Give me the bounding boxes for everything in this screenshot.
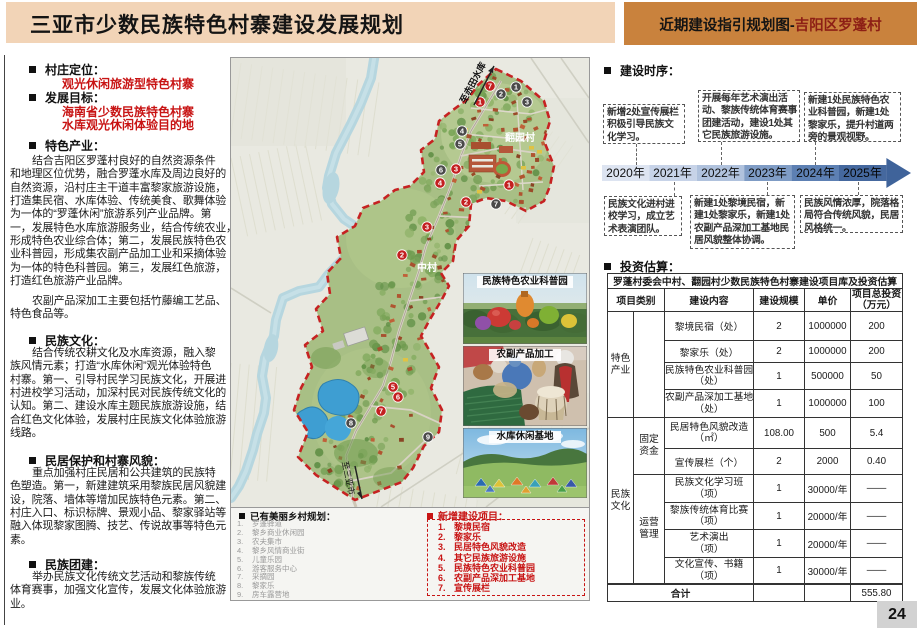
svg-text:3: 3 <box>525 98 529 107</box>
svg-text:3: 3 <box>425 223 429 232</box>
svg-text:2: 2 <box>400 251 404 260</box>
svg-text:3: 3 <box>454 165 458 174</box>
svg-text:2: 2 <box>499 90 503 99</box>
svg-text:7: 7 <box>494 200 498 209</box>
svg-text:5: 5 <box>391 383 395 392</box>
svg-text:5: 5 <box>458 140 462 149</box>
svg-text:6: 6 <box>439 166 443 175</box>
svg-text:中村: 中村 <box>417 261 437 274</box>
svg-text:7: 7 <box>379 407 383 416</box>
svg-text:9: 9 <box>426 433 430 442</box>
svg-text:8: 8 <box>349 419 353 428</box>
svg-text:6: 6 <box>396 393 400 402</box>
svg-text:1: 1 <box>478 98 482 107</box>
svg-text:1: 1 <box>514 83 518 92</box>
svg-text:1: 1 <box>507 181 511 190</box>
svg-text:7: 7 <box>488 82 492 91</box>
svg-text:2: 2 <box>464 198 468 207</box>
svg-text:翻园村: 翻园村 <box>505 131 535 144</box>
